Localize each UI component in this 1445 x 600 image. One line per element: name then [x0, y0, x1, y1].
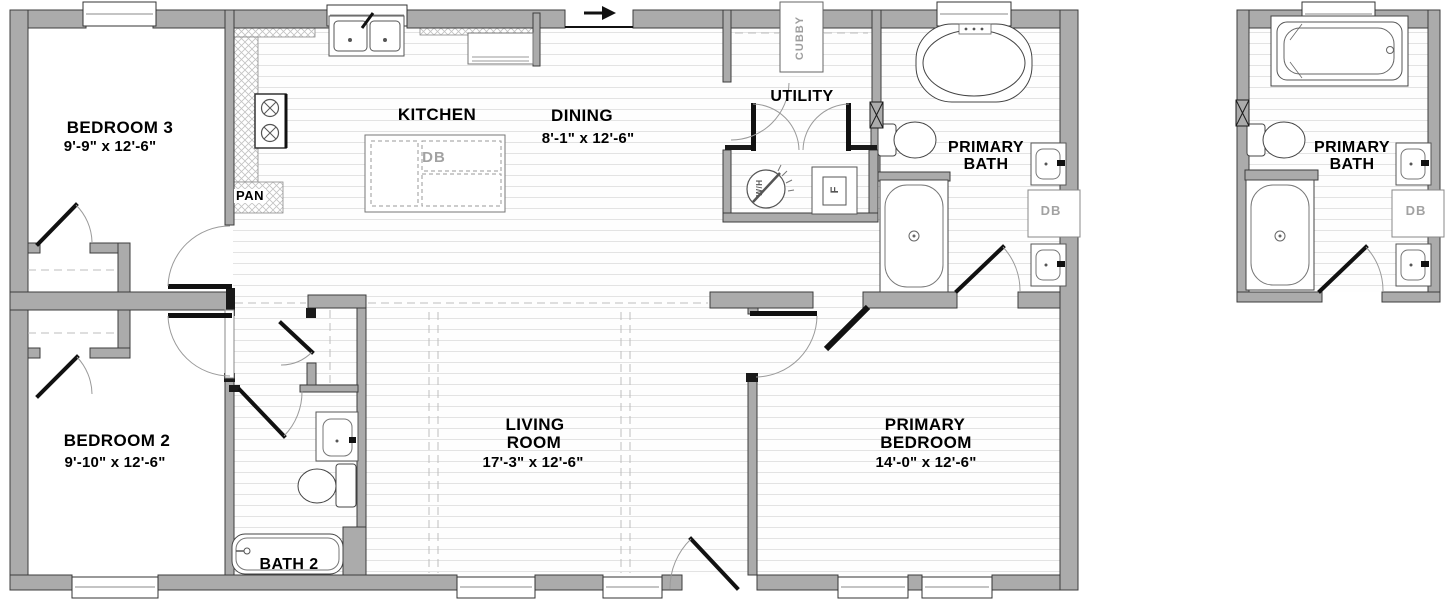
detail-primary-bath-label-2: BATH [1272, 156, 1432, 174]
cubby-label: CUBBY [793, 10, 807, 66]
refrigerator [468, 33, 533, 64]
detail-tub [1271, 16, 1408, 86]
living-room-dims: 17'-3" x 12'-6" [433, 455, 633, 472]
detail-cabinet-label: DB [1386, 204, 1445, 218]
living-room-label-1: LIVING [435, 416, 635, 435]
primary-bath-label-1: PRIMARY [906, 139, 1066, 157]
bath2-vanity [316, 412, 358, 461]
kitchen-island [365, 135, 505, 212]
bath-cabinet-label: DB [1021, 204, 1081, 218]
dining-label: DINING [482, 107, 682, 126]
water-heater-label: W/H [754, 173, 766, 203]
range-icon [255, 94, 286, 148]
primary-bedroom-label-2: BEDROOM [826, 434, 1026, 453]
living-room-label-2: ROOM [434, 434, 634, 453]
floor-plan-page: BEDROOM 3 9'-9" x 12'-6" KITCHEN DINING … [0, 0, 1445, 600]
kitchen-sink [329, 13, 404, 56]
bath2-label: BATH 2 [219, 556, 359, 574]
utility-label: UTILITY [702, 88, 902, 106]
pantry-label: PAN [234, 189, 266, 203]
entry-arrow-icon [584, 6, 616, 20]
bedroom2-label: BEDROOM 2 [17, 432, 217, 451]
primary-bath-shower [880, 180, 948, 292]
bedroom3-dims: 9'-9" x 12'-6" [10, 139, 210, 156]
dining-dims: 8'-1" x 12'-6" [488, 131, 688, 148]
furnace-label: F [829, 180, 841, 200]
bedroom3-label: BEDROOM 3 [20, 119, 220, 138]
primary-bedroom-dims: 14'-0" x 12'-6" [826, 455, 1026, 472]
detail-shower [1246, 180, 1314, 290]
island-dishwasher-label: DB [404, 150, 464, 167]
bedroom2-dims: 9'-10" x 12'-6" [15, 455, 215, 472]
detail-primary-bath-label-1: PRIMARY [1272, 139, 1432, 157]
primary-bath-label-2: BATH [906, 156, 1066, 174]
primary-bedroom-label-1: PRIMARY [825, 416, 1025, 435]
primary-bath-tub [916, 24, 1032, 102]
bedroom2-door-jamb [225, 310, 234, 378]
